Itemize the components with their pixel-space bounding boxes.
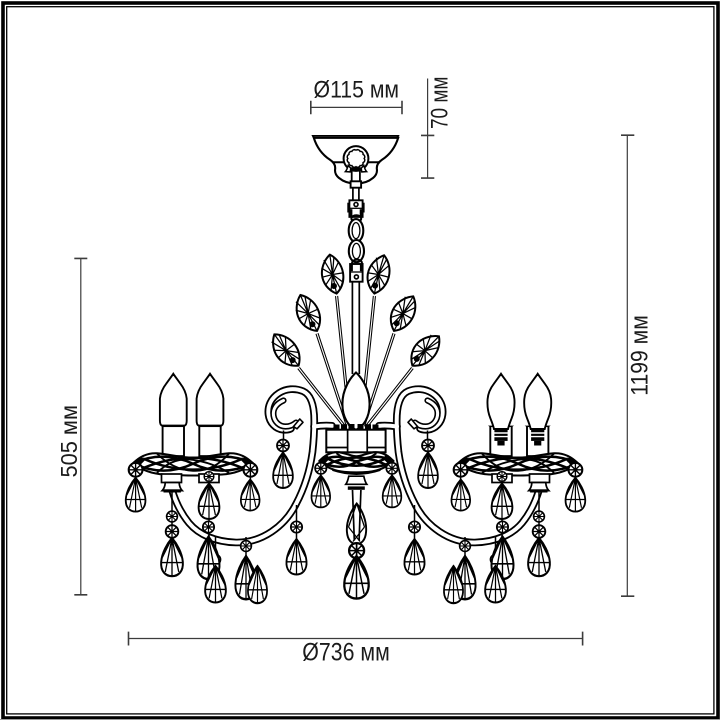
svg-text:505 мм: 505 мм	[56, 405, 82, 478]
svg-text:Ø115 мм: Ø115 мм	[314, 77, 400, 104]
svg-text:70 мм: 70 мм	[427, 77, 454, 130]
svg-text:1199 мм: 1199 мм	[627, 315, 654, 396]
svg-text:Ø736 мм: Ø736 мм	[302, 639, 390, 667]
